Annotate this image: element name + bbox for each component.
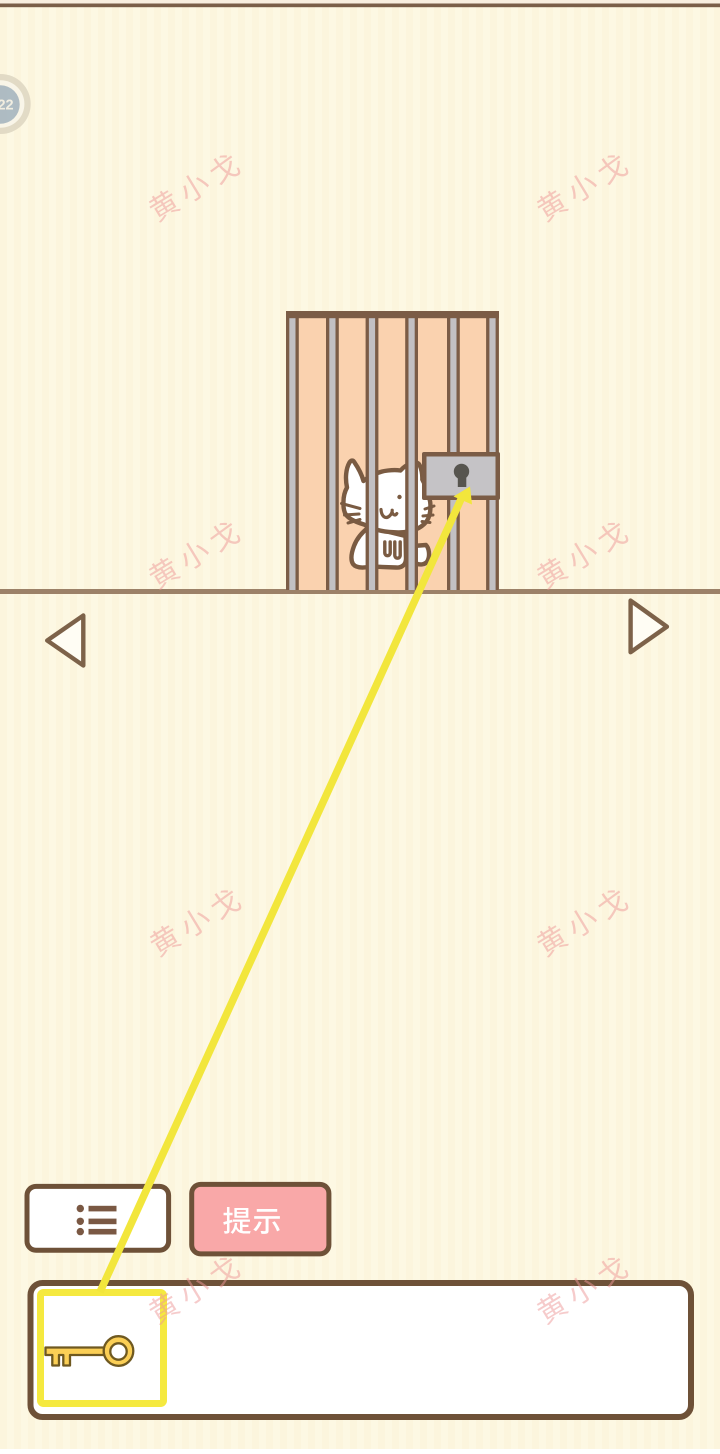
svg-text:22: 22 xyxy=(0,98,14,114)
